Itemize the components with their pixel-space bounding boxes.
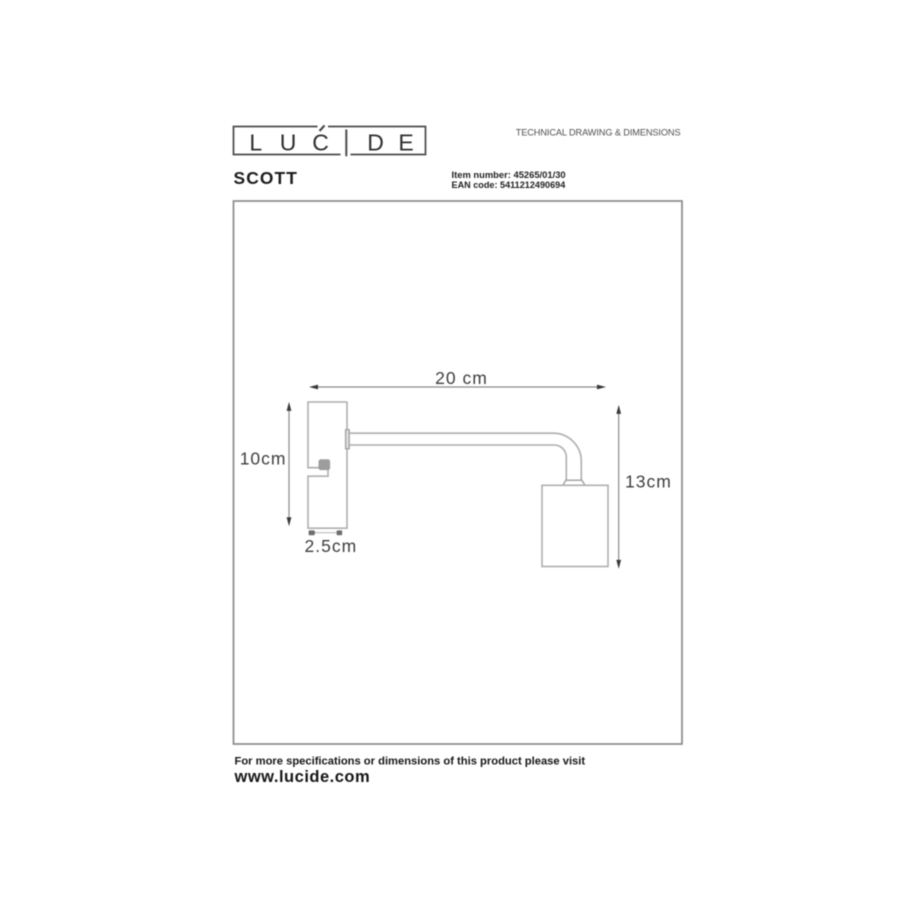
svg-text:C: C (312, 130, 329, 156)
svg-text:Item number: 45265/01/30: Item number: 45265/01/30 (452, 169, 566, 180)
svg-text:L: L (249, 130, 262, 156)
svg-text:www.lucide.com: www.lucide.com (234, 768, 371, 786)
svg-text:For more specifications or dim: For more specifications or dimensions of… (235, 756, 586, 768)
svg-text:D: D (367, 130, 384, 156)
svg-text:U: U (280, 130, 297, 156)
svg-text:E: E (398, 130, 413, 156)
svg-text:13cm: 13cm (625, 472, 672, 492)
svg-text:SCOTT: SCOTT (234, 168, 298, 188)
svg-text:20 cm: 20 cm (435, 368, 488, 388)
svg-text:10cm: 10cm (240, 449, 287, 469)
svg-text:2.5cm: 2.5cm (305, 536, 358, 556)
svg-text:TECHNICAL DRAWING & DIMENSIONS: TECHNICAL DRAWING & DIMENSIONS (516, 128, 681, 138)
svg-text:EAN code: 5411212490694: EAN code: 5411212490694 (452, 180, 567, 190)
